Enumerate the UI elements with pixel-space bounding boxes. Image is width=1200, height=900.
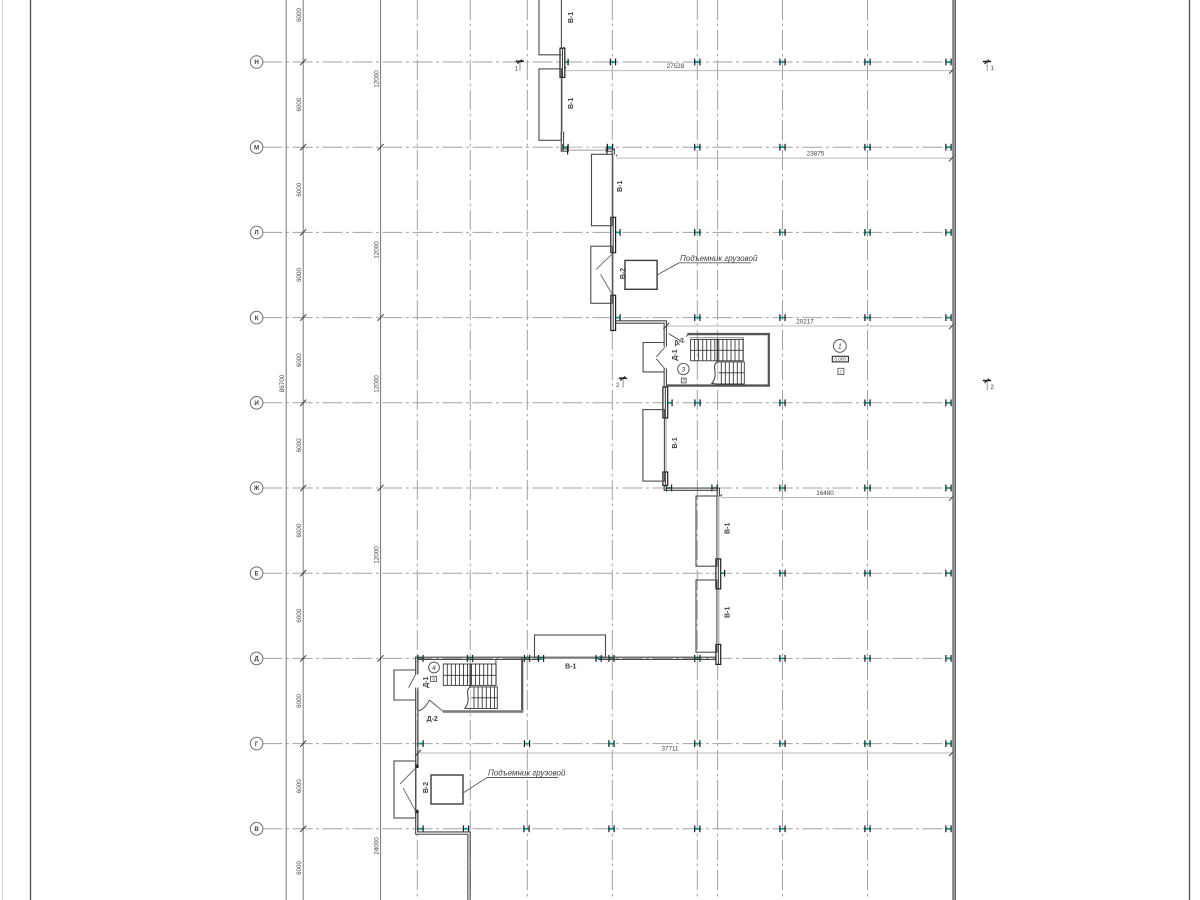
svg-text:0.000: 0.000 xyxy=(835,357,847,362)
svg-text:6000: 6000 xyxy=(296,268,303,283)
svg-text:1: 1 xyxy=(838,344,842,351)
svg-text:Л: Л xyxy=(254,230,258,237)
svg-text:7: 7 xyxy=(840,370,843,375)
svg-text:20217: 20217 xyxy=(796,319,814,326)
svg-text:86700: 86700 xyxy=(279,374,286,392)
svg-text:6000: 6000 xyxy=(296,861,303,876)
svg-text:12000: 12000 xyxy=(374,546,381,564)
svg-text:6000: 6000 xyxy=(296,353,303,368)
svg-text:Д-2: Д-2 xyxy=(427,716,438,723)
svg-text:12000: 12000 xyxy=(374,241,381,259)
svg-text:В-2: В-2 xyxy=(620,268,627,279)
svg-text:Н: Н xyxy=(254,59,259,66)
svg-text:Д-1: Д-1 xyxy=(672,349,679,360)
svg-text:Ж: Ж xyxy=(253,485,260,492)
svg-text:В-1: В-1 xyxy=(672,437,679,448)
svg-text:6000: 6000 xyxy=(296,182,303,197)
svg-text:М: М xyxy=(254,144,259,151)
svg-text:27528: 27528 xyxy=(667,63,685,70)
svg-text:6000: 6000 xyxy=(296,438,303,453)
svg-text:Д: Д xyxy=(254,656,259,663)
svg-text:И: И xyxy=(254,400,259,407)
svg-text:6000: 6000 xyxy=(296,97,303,112)
svg-text:В-1: В-1 xyxy=(724,607,731,618)
svg-text:В-2: В-2 xyxy=(423,782,430,793)
svg-text:В-1: В-1 xyxy=(617,181,624,192)
svg-text:6000: 6000 xyxy=(296,8,303,23)
svg-text:Е: Е xyxy=(255,570,259,577)
svg-text:23875: 23875 xyxy=(807,151,825,158)
svg-text:4: 4 xyxy=(432,665,436,672)
svg-text:3: 3 xyxy=(682,367,686,374)
svg-text:В-1: В-1 xyxy=(568,12,575,23)
svg-text:Д-1: Д-1 xyxy=(423,676,430,687)
svg-text:6000: 6000 xyxy=(296,694,303,709)
svg-text:В-1: В-1 xyxy=(568,98,575,109)
svg-text:6000: 6000 xyxy=(296,608,303,623)
svg-text:Подъемник грузовой: Подъемник грузовой xyxy=(680,254,758,263)
svg-text:24000: 24000 xyxy=(374,837,381,855)
svg-text:К: К xyxy=(255,315,259,322)
svg-text:16480: 16480 xyxy=(816,490,834,497)
svg-text:6000: 6000 xyxy=(296,523,303,538)
svg-text:37711: 37711 xyxy=(661,746,679,753)
svg-text:В-1: В-1 xyxy=(565,663,576,670)
svg-text:6000: 6000 xyxy=(296,779,303,794)
svg-text:Г: Г xyxy=(255,741,259,748)
svg-text:В: В xyxy=(254,826,259,833)
svg-text:12000: 12000 xyxy=(374,375,381,393)
svg-text:В-1: В-1 xyxy=(724,523,731,534)
svg-text:Подъемник грузовой: Подъемник грузовой xyxy=(488,769,566,778)
svg-text:12000: 12000 xyxy=(374,70,381,88)
